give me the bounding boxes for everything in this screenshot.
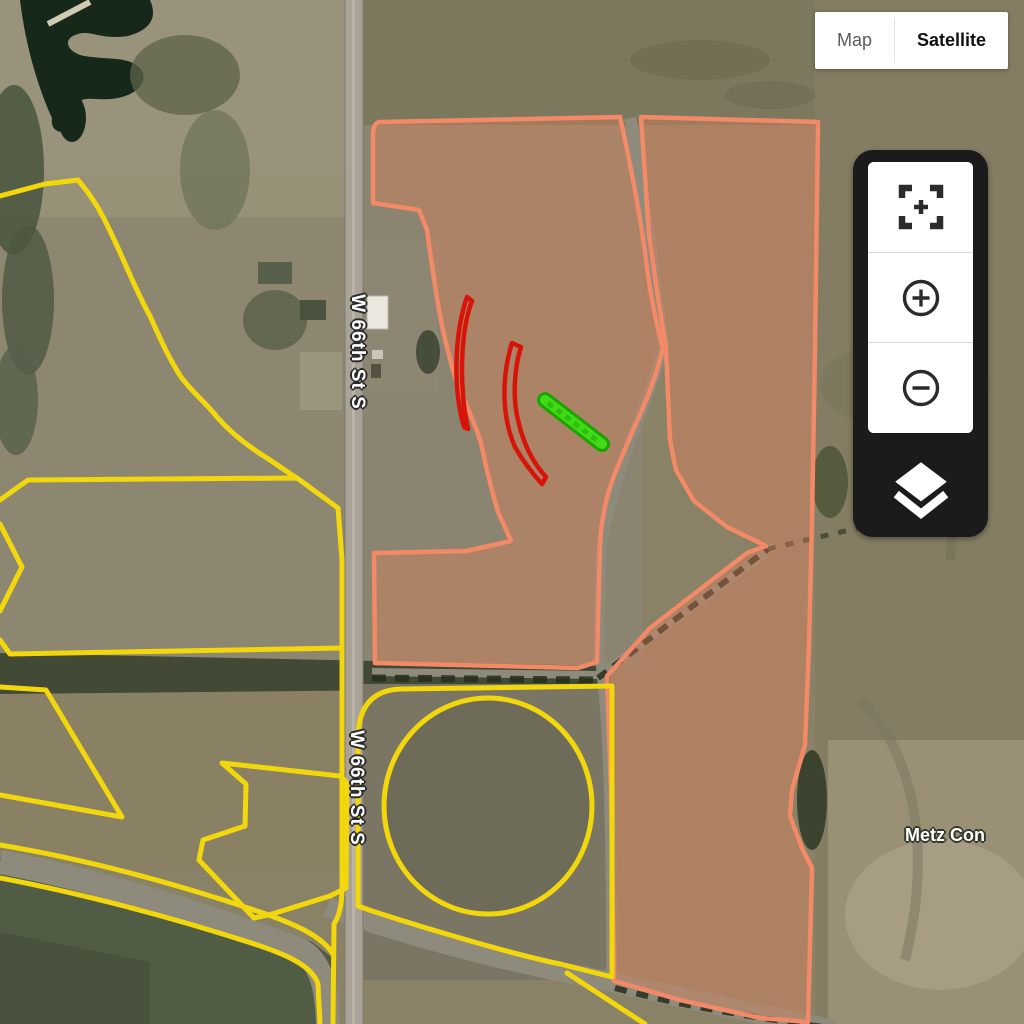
layers-icon: [888, 456, 954, 522]
zoom-button-stack: [868, 162, 973, 433]
zoom-in-icon: [898, 275, 944, 321]
satellite-view-button[interactable]: Satellite: [895, 12, 1008, 69]
zoom-out-button[interactable]: [868, 343, 973, 433]
road-label-south: W 66th St S: [345, 730, 367, 846]
navigation-panel: [853, 150, 988, 537]
road-label-north: W 66th St S: [346, 294, 368, 410]
place-label-metz: Metz Con: [905, 825, 985, 846]
map-screenshot: { "map_type_control": { "map_label": "Ma…: [0, 0, 1024, 1024]
zoom-out-icon: [898, 365, 944, 411]
zoom-in-button[interactable]: [868, 253, 973, 343]
layers-button[interactable]: [853, 440, 988, 537]
map-view-button[interactable]: Map: [815, 12, 894, 69]
fullscreen-button[interactable]: [868, 162, 973, 252]
fullscreen-expand-icon: [895, 181, 947, 233]
map-type-control: Map Satellite: [815, 12, 1008, 69]
